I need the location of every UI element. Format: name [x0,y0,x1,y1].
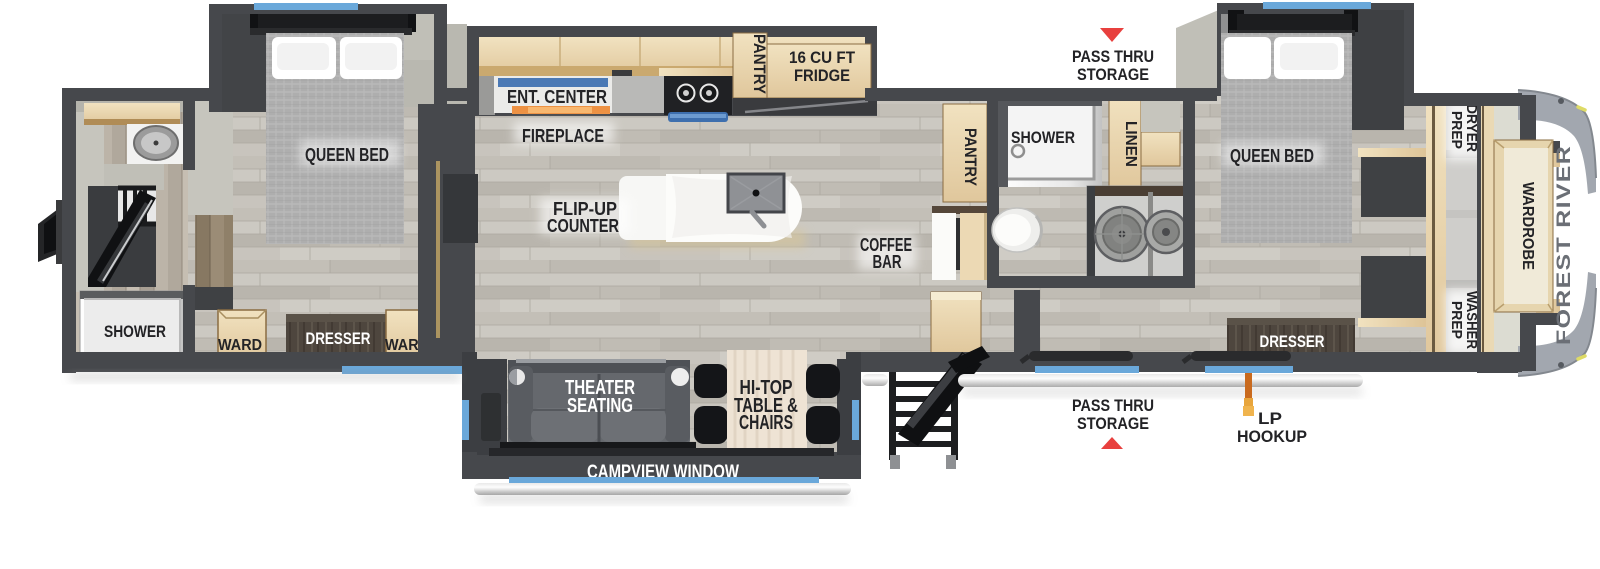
svg-text:SHOWER: SHOWER [104,322,166,341]
svg-text:QUEEN BED: QUEEN BED [305,145,389,165]
svg-text:FIREPLACE: FIREPLACE [522,126,604,146]
svg-text:BAR: BAR [873,252,902,272]
svg-text:16 CU FT: 16 CU FT [789,48,856,67]
svg-text:COUNTER: COUNTER [547,216,619,236]
svg-text:QUEEN BED: QUEEN BED [1230,146,1314,166]
svg-text:LINEN: LINEN [1122,121,1139,167]
svg-text:STORAGE: STORAGE [1077,414,1149,433]
svg-text:SEATING: SEATING [567,395,633,417]
svg-text:PREP: PREP [1448,111,1465,149]
svg-text:STORAGE: STORAGE [1077,65,1149,84]
svg-text:FRIDGE: FRIDGE [794,66,850,85]
svg-text:CHAIRS: CHAIRS [739,412,793,434]
svg-text:PANTRY: PANTRY [750,34,769,95]
svg-text:PASS THRU: PASS THRU [1072,396,1154,415]
svg-text:HOOKUP: HOOKUP [1237,427,1307,446]
svg-text:PASS THRU: PASS THRU [1072,47,1154,66]
svg-text:DRESSER: DRESSER [306,329,371,348]
svg-text:PREP: PREP [1448,301,1465,339]
svg-text:LP: LP [1258,409,1282,428]
svg-text:WARDROBE: WARDROBE [1519,182,1536,270]
svg-text:SHOWER: SHOWER [1011,128,1075,147]
svg-text:PANTRY: PANTRY [961,128,980,187]
svg-text:DRESSER: DRESSER [1260,332,1325,351]
svg-text:WARD: WARD [218,337,262,354]
svg-text:FOREST RIVER: FOREST RIVER [1554,145,1575,345]
svg-text:ENT. CENTER: ENT. CENTER [507,87,607,107]
